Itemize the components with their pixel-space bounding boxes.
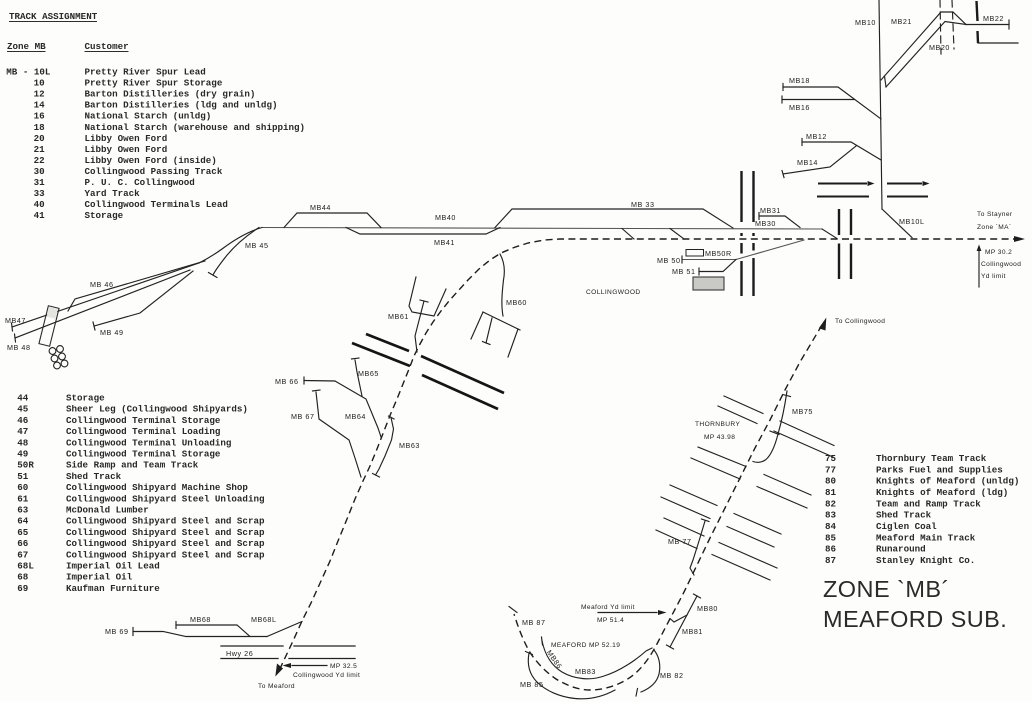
svg-text:MB 50: MB 50 (657, 256, 681, 265)
svg-text:83: 83 (825, 510, 837, 521)
svg-text:MB44: MB44 (310, 203, 331, 212)
svg-text:50R: 50R (17, 460, 34, 471)
svg-text:41: 41 (34, 210, 46, 221)
svg-text:46: 46 (17, 415, 28, 426)
svg-text:Knights of Meaford (ldg): Knights of Meaford (ldg) (876, 487, 1008, 498)
svg-text:Ciglen Coal: Ciglen Coal (876, 521, 937, 532)
svg-text:84: 84 (825, 521, 837, 532)
svg-text:14: 14 (34, 100, 46, 111)
svg-text:Collingwood Shipyard Steel and: Collingwood Shipyard Steel and Scrap (66, 516, 265, 527)
svg-text:National Starch (warehouse and: National Starch (warehouse and shipping) (85, 122, 306, 133)
svg-text:Libby Owen Ford: Libby Owen Ford (85, 133, 168, 144)
svg-text:MB 48: MB 48 (7, 343, 31, 352)
svg-text:Barton Distilleries (dry grain: Barton Distilleries (dry grain) (85, 89, 256, 100)
svg-text:Meaford Main Track: Meaford Main Track (876, 532, 976, 543)
svg-text:MB20: MB20 (929, 43, 950, 52)
svg-text:Libby Owen Ford: Libby Owen Ford (85, 144, 168, 155)
svg-text:Shed Track: Shed Track (876, 510, 932, 521)
svg-text:MB21: MB21 (891, 17, 912, 26)
svg-text:Customer: Customer (85, 41, 129, 52)
svg-text:47: 47 (17, 426, 28, 437)
svg-text:66: 66 (17, 538, 28, 549)
svg-text:Storage: Storage (66, 393, 105, 404)
svg-text:MB60: MB60 (506, 298, 527, 307)
svg-text:MB75: MB75 (792, 407, 813, 416)
svg-text:McDonald Lumber: McDonald Lumber (66, 505, 149, 516)
svg-text:Collingwood Shipyard Steel Unl: Collingwood Shipyard Steel Unloading (66, 493, 264, 504)
svg-text:20: 20 (34, 133, 45, 144)
svg-text:Collingwood Terminals Lead: Collingwood Terminals Lead (85, 199, 228, 210)
svg-text:12: 12 (34, 89, 45, 100)
svg-text:67: 67 (17, 549, 28, 560)
svg-text:22: 22 (34, 155, 45, 166)
svg-text:Side Ramp and Team Track: Side Ramp and Team Track (66, 460, 199, 471)
svg-text:Collingwood Shipyard Steel and: Collingwood Shipyard Steel and Scrap (66, 549, 265, 560)
svg-text:Yard Track: Yard Track (85, 188, 141, 199)
svg-text:Stanley Knight Co.: Stanley Knight Co. (876, 555, 975, 566)
svg-text:Hwy 26: Hwy 26 (226, 649, 253, 658)
svg-text:MB 85: MB 85 (520, 680, 544, 689)
svg-text:Storage: Storage (85, 210, 124, 221)
svg-text:MB 45: MB 45 (245, 241, 269, 250)
svg-text:MB 67: MB 67 (291, 412, 315, 421)
svg-text:Meaford Yd limit: Meaford Yd limit (581, 604, 635, 611)
svg-text:THORNBURY: THORNBURY (695, 421, 740, 428)
svg-text:COLLINGWOOD: COLLINGWOOD (586, 289, 641, 296)
svg-text:68: 68 (17, 572, 29, 583)
svg-text:MB 46: MB 46 (90, 280, 114, 289)
svg-text:MB30: MB30 (755, 219, 776, 228)
svg-text:Collingwood Shipyard Steel and: Collingwood Shipyard Steel and Scrap (66, 527, 265, 538)
svg-text:82: 82 (825, 498, 836, 509)
svg-text:44: 44 (17, 393, 29, 404)
svg-text:86: 86 (825, 544, 836, 555)
svg-text:MB 51: MB 51 (672, 267, 696, 276)
svg-text:60: 60 (17, 482, 28, 493)
svg-text:National Starch (unldg): National Starch (unldg) (85, 111, 212, 122)
svg-text:18: 18 (34, 122, 46, 133)
svg-text:MEAFORD MP 52.19: MEAFORD MP 52.19 (551, 642, 620, 649)
svg-text:10: 10 (34, 78, 45, 89)
svg-text:MB31: MB31 (760, 206, 781, 215)
svg-text:80: 80 (825, 476, 836, 487)
svg-text:TRACK ASSIGNMENT: TRACK ASSIGNMENT (9, 11, 98, 22)
svg-text:Pretty River Spur Storage: Pretty River Spur Storage (85, 78, 223, 89)
svg-text:MB14: MB14 (797, 158, 818, 167)
svg-text:Imperial Oil Lead: Imperial Oil Lead (66, 561, 160, 572)
svg-text:MB40: MB40 (435, 213, 456, 222)
svg-text:P. U. C. Collingwood: P. U. C. Collingwood (85, 177, 195, 188)
svg-text:65: 65 (17, 527, 29, 538)
svg-text:33: 33 (34, 188, 46, 199)
svg-text:MB65: MB65 (358, 369, 379, 378)
svg-text:61: 61 (17, 493, 29, 504)
svg-text:Collingwood Passing Track: Collingwood Passing Track (85, 166, 223, 177)
svg-text:Collingwood: Collingwood (981, 261, 1021, 268)
svg-text:16: 16 (34, 111, 45, 122)
svg-text:77: 77 (825, 464, 836, 475)
svg-text:63: 63 (17, 505, 29, 516)
svg-text:MB10: MB10 (855, 18, 876, 27)
svg-text:MB41: MB41 (434, 238, 455, 247)
svg-text:Pretty River Spur Lead: Pretty River Spur Lead (85, 67, 206, 78)
svg-text:To Collingwood: To Collingwood (835, 318, 885, 325)
svg-text:MB47: MB47 (5, 316, 26, 325)
svg-text:Yd limit: Yd limit (981, 273, 1006, 280)
svg-text:49: 49 (17, 449, 28, 460)
svg-text:Runaround: Runaround (876, 544, 926, 555)
svg-text:MB18: MB18 (789, 76, 810, 85)
svg-text:MB 66: MB 66 (275, 377, 299, 386)
svg-text:MB - 10L: MB - 10L (6, 67, 51, 78)
svg-text:81: 81 (825, 487, 837, 498)
svg-text:Team and Ramp Track: Team and Ramp Track (876, 498, 981, 509)
svg-text:MB64: MB64 (345, 412, 366, 421)
svg-text:30: 30 (34, 166, 45, 177)
svg-text:MB63: MB63 (399, 441, 420, 450)
svg-text:MB12: MB12 (806, 132, 827, 141)
svg-text:Kaufman Furniture: Kaufman Furniture (66, 583, 160, 594)
svg-text:Imperial Oil: Imperial Oil (66, 572, 133, 583)
svg-text:64: 64 (17, 516, 29, 527)
svg-text:69: 69 (17, 583, 28, 594)
svg-text:Collingwood Terminal Storage: Collingwood Terminal Storage (66, 415, 221, 426)
svg-text:Parks Fuel and Supplies: Parks Fuel and Supplies (876, 464, 1003, 475)
svg-text:Collingwood Terminal Storage: Collingwood Terminal Storage (66, 449, 221, 460)
svg-text:MB83: MB83 (575, 667, 596, 676)
svg-text:21: 21 (34, 144, 46, 155)
svg-text:MP 30.2: MP 30.2 (985, 249, 1012, 256)
svg-text:Barton Distilleries (ldg and u: Barton Distilleries (ldg and unldg) (85, 100, 278, 111)
svg-text:Thornbury Team Track: Thornbury Team Track (876, 453, 987, 464)
svg-text:MB10L: MB10L (899, 217, 925, 226)
svg-text:MB 77: MB 77 (668, 537, 692, 546)
svg-text:51: 51 (17, 471, 29, 482)
svg-text:Knights of Meaford (unldg): Knights of Meaford (unldg) (876, 476, 1019, 487)
svg-text:40: 40 (34, 199, 45, 210)
svg-text:MP 43.98: MP 43.98 (704, 434, 735, 441)
svg-text:MB50R: MB50R (705, 249, 732, 258)
svg-text:Sheer Leg (Collingwood Shipyar: Sheer Leg (Collingwood Shipyards) (66, 404, 248, 415)
svg-text:45: 45 (17, 404, 29, 415)
svg-text:MB 33: MB 33 (631, 200, 655, 209)
svg-text:MB68L: MB68L (251, 615, 277, 624)
svg-text:48: 48 (17, 437, 29, 448)
svg-text:MB 87: MB 87 (522, 618, 546, 627)
svg-text:68L: 68L (17, 561, 34, 572)
svg-text:Zone MB: Zone MB (7, 41, 46, 52)
svg-text:MB80: MB80 (697, 604, 718, 613)
svg-text:MB61: MB61 (388, 312, 409, 321)
svg-text:Collingwood Terminal Loading: Collingwood Terminal Loading (66, 426, 220, 437)
svg-text:MB 49: MB 49 (100, 328, 124, 337)
svg-text:Collingwood Terminal Unloading: Collingwood Terminal Unloading (66, 437, 231, 448)
svg-text:MB22: MB22 (983, 14, 1004, 23)
svg-text:MP 51.4: MP 51.4 (597, 617, 624, 624)
svg-text:ZONE `MB´: ZONE `MB´ (823, 576, 950, 602)
svg-text:To Meaford: To Meaford (258, 683, 295, 690)
svg-text:87: 87 (825, 555, 836, 566)
svg-text:MEAFORD SUB.: MEAFORD SUB. (823, 606, 1007, 632)
svg-text:MB16: MB16 (789, 103, 810, 112)
svg-text:Collingwood Shipyard Steel and: Collingwood Shipyard Steel and Scrap (66, 538, 265, 549)
svg-text:MB 82: MB 82 (660, 671, 684, 680)
svg-text:MP 32.5: MP 32.5 (330, 663, 357, 670)
svg-text:To Stayner: To Stayner (977, 211, 1013, 218)
svg-text:Libby Owen Ford (inside): Libby Owen Ford (inside) (85, 155, 217, 166)
svg-text:Collingwood Yd limit: Collingwood Yd limit (293, 672, 360, 679)
svg-text:MB68: MB68 (190, 615, 211, 624)
svg-text:31: 31 (34, 177, 46, 188)
svg-text:MB81: MB81 (682, 627, 703, 636)
svg-text:85: 85 (825, 532, 837, 543)
svg-text:MB 69: MB 69 (105, 627, 129, 636)
svg-text:Shed Track: Shed Track (66, 471, 122, 482)
svg-text:Collingwood Shipyard Machine S: Collingwood Shipyard Machine Shop (66, 482, 248, 493)
svg-text:Zone `MA´: Zone `MA´ (977, 224, 1012, 231)
